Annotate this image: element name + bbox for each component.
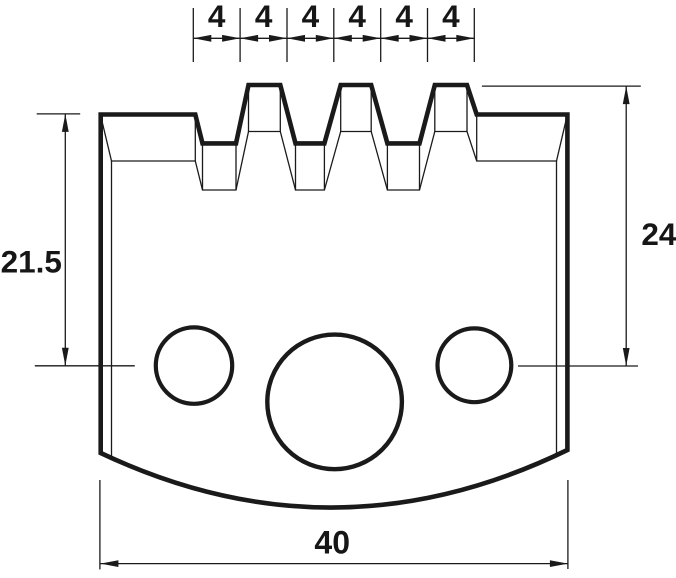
svg-text:40: 40 [314, 525, 350, 561]
svg-text:4: 4 [302, 0, 320, 34]
svg-text:4: 4 [208, 0, 226, 34]
svg-text:21.5: 21.5 [1, 244, 62, 280]
svg-text:24: 24 [641, 216, 676, 252]
svg-text:4: 4 [255, 0, 273, 34]
svg-text:4: 4 [395, 0, 413, 34]
svg-text:4: 4 [348, 0, 366, 34]
svg-text:4: 4 [442, 0, 460, 34]
